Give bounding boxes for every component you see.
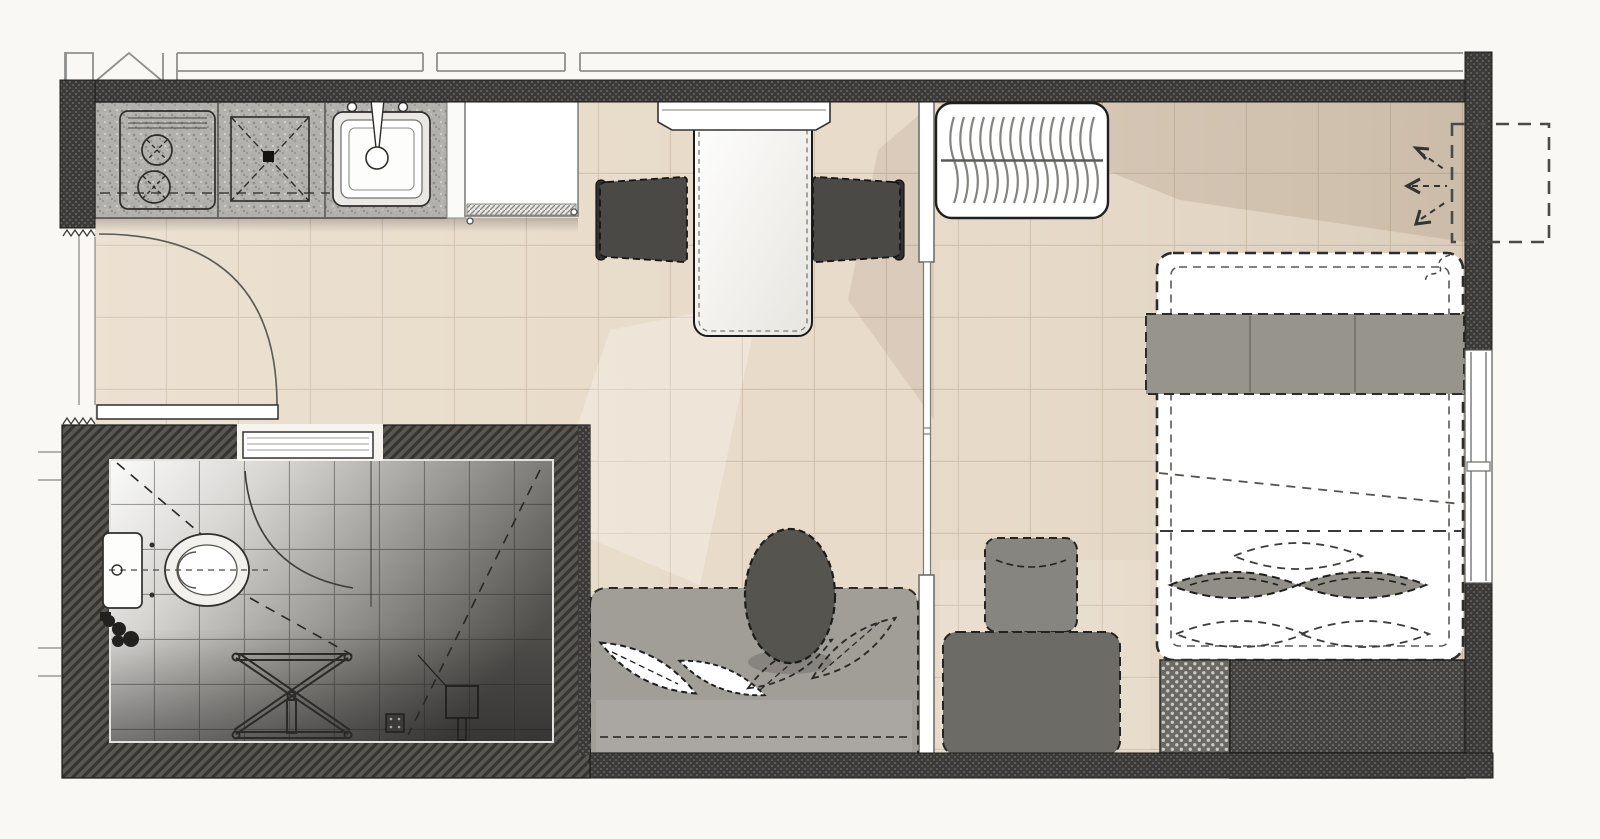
wall-bottom — [560, 753, 1493, 778]
kitchen — [95, 100, 578, 232]
wall-break-mark — [63, 418, 95, 424]
nightstand — [1160, 660, 1230, 753]
oval-side-table — [745, 529, 835, 663]
floor-plan-page: Studio apartment floor plan — top-down a… — [0, 0, 1600, 839]
counter-end-panel — [447, 102, 465, 218]
dining-wall-cabinet — [658, 100, 830, 130]
radiator — [936, 103, 1108, 218]
refrigerator — [465, 100, 578, 224]
dimension-ticks — [38, 452, 61, 676]
dining-table — [694, 110, 812, 336]
wall-right-lower — [1465, 583, 1492, 778]
balcony-outline — [65, 52, 1463, 80]
dining-chair-right — [813, 177, 904, 262]
lounge-chair-back — [985, 538, 1077, 632]
door-leaf — [97, 405, 278, 419]
wall-left-block — [60, 80, 95, 228]
worktop-drain — [263, 151, 274, 162]
shower-drain — [386, 714, 404, 732]
partition-glass — [924, 262, 931, 575]
bay-marker-triangle — [97, 53, 161, 80]
bathroom-wall-column — [578, 425, 590, 755]
bed — [1146, 253, 1464, 660]
window-right — [1465, 350, 1492, 583]
wall-top — [60, 80, 1465, 102]
fridge-hinge-icon — [467, 218, 473, 224]
floor-plan: Studio apartment floor plan — top-down a… — [0, 0, 1600, 839]
counter-shadow — [95, 218, 578, 232]
partition-post-top — [919, 100, 934, 262]
sink-drain — [366, 147, 388, 169]
bed-blanket — [1146, 314, 1464, 394]
bathroom — [62, 424, 590, 778]
bathroom-door-leaf — [243, 432, 373, 458]
kitchen-sink — [333, 100, 430, 206]
lounge-chair-seat — [943, 632, 1120, 755]
wall-break-mark — [63, 230, 95, 236]
dining-chair-left — [596, 177, 687, 262]
wall-right-upper — [1465, 52, 1492, 350]
partition-post-bottom — [919, 575, 934, 757]
fridge-hinge-icon — [571, 209, 577, 215]
